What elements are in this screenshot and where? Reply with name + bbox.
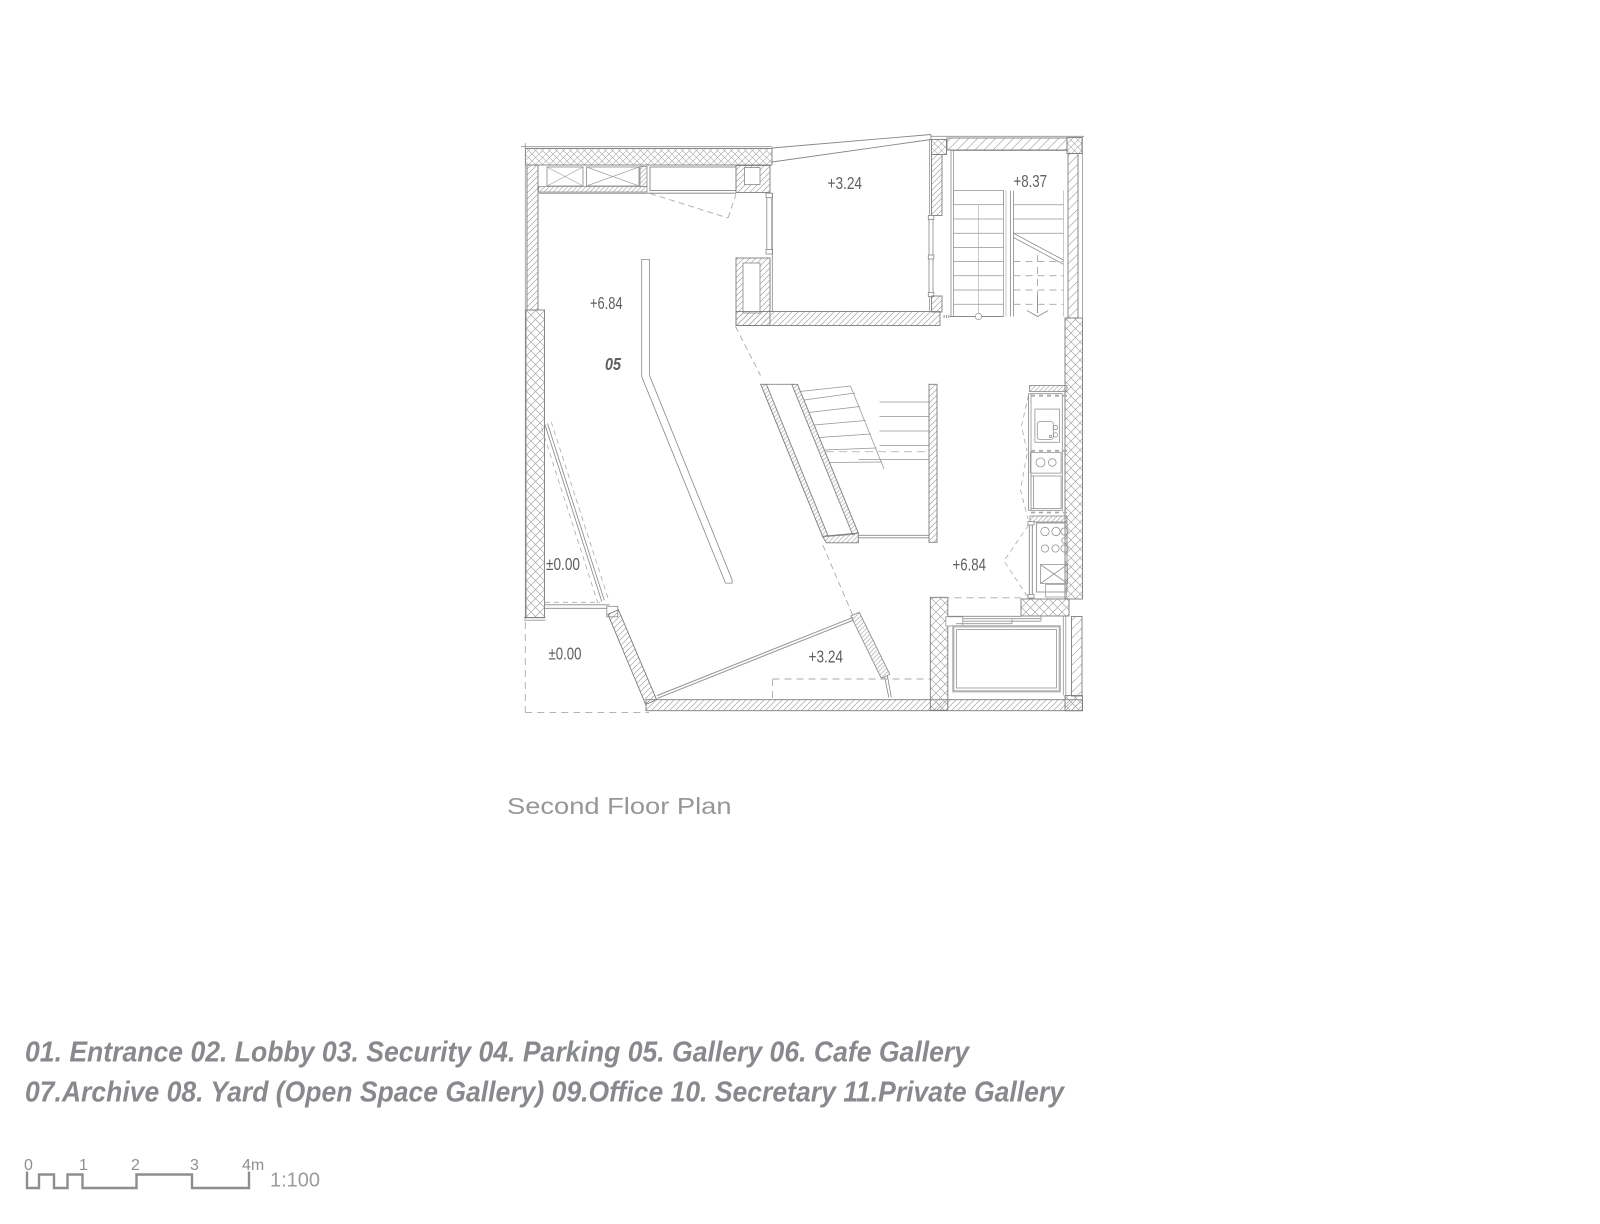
svg-text:Second Floor Plan: Second Floor Plan [507, 793, 732, 819]
svg-text:±0.00: ±0.00 [546, 554, 580, 574]
svg-text:1: 1 [79, 1157, 88, 1174]
svg-text:+8.37: +8.37 [1014, 171, 1048, 191]
svg-text:2: 2 [131, 1157, 140, 1174]
svg-text:01. Entrance 02. Lobby 03. Sec: 01. Entrance 02. Lobby 03. Security 04. … [25, 1037, 971, 1069]
svg-text:+6.84: +6.84 [953, 555, 987, 575]
svg-text:+6.84: +6.84 [590, 293, 623, 313]
svg-text:4m: 4m [242, 1157, 264, 1174]
svg-text:05: 05 [605, 354, 621, 374]
svg-text:3: 3 [190, 1157, 199, 1174]
svg-text:+3.24: +3.24 [828, 173, 863, 193]
svg-text:±0.00: ±0.00 [549, 644, 582, 664]
svg-text:+3.24: +3.24 [809, 647, 844, 667]
svg-text:07.Archive 08. Yard (Open Spac: 07.Archive 08. Yard (Open Space Gallery)… [25, 1077, 1066, 1109]
svg-text:0: 0 [24, 1157, 33, 1174]
svg-text:1:100: 1:100 [270, 1170, 320, 1192]
